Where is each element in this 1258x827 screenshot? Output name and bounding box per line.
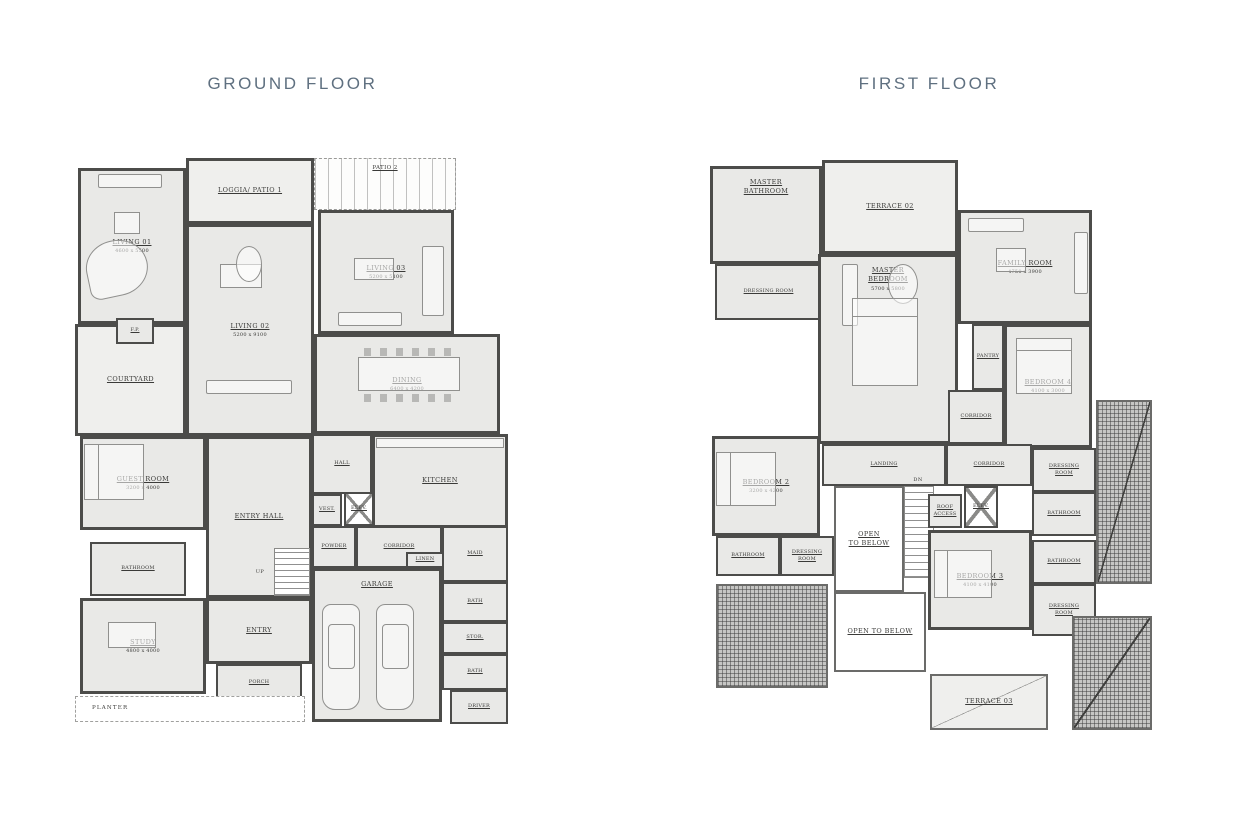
room-label: DRIVER <box>468 703 490 710</box>
room-label: OPEN TO BELOW <box>848 627 913 636</box>
room-open-to-below-2: OPEN TO BELOW <box>834 592 926 672</box>
bed-pillow-line <box>98 445 99 499</box>
room-driver: DRIVER <box>450 690 508 724</box>
room-corridor-upper: CORRIDOR <box>948 390 1004 444</box>
room-label: CORRIDOR <box>961 413 992 420</box>
furniture-rect <box>358 357 460 391</box>
room-dn-label: DN <box>906 476 930 485</box>
room-corridor-lower: CORRIDOR <box>946 444 1032 486</box>
room-label: PANTRY <box>977 353 999 360</box>
bed-pillow-line <box>947 551 948 597</box>
room-terrace-03: TERRACE 03 <box>930 674 1048 730</box>
room-label: DRESSING ROOM <box>744 288 794 295</box>
room-label: LOGGIA/ PATIO 1 <box>218 186 282 195</box>
room-open-to-below-1: OPEN TO BELOW <box>834 486 904 592</box>
room-dimensions: 4800 x 4000 <box>126 648 160 654</box>
room-label: GARAGE <box>361 580 393 589</box>
room-label: DRESSING ROOM <box>1049 463 1079 478</box>
room-patio-2: PATIO 2 <box>314 158 456 210</box>
room-vest: VEST. <box>312 494 342 526</box>
room-bath-1: BATH <box>442 582 508 622</box>
first-floor-plan: MASTER BATHROOMTERRACE 02DRESSING ROOMMA… <box>700 152 1158 732</box>
room-label: OPEN TO BELOW <box>849 530 890 549</box>
room-linen: LINEN <box>406 552 444 568</box>
room-powder: POWDER <box>312 526 356 568</box>
furniture-sofa <box>98 174 162 188</box>
bed-pillow-line <box>1017 350 1071 351</box>
room-label: ELEV. <box>351 505 367 512</box>
furniture-chairs <box>364 394 454 402</box>
room-label: BATHROOM <box>1047 510 1080 517</box>
furniture-rect <box>354 258 394 280</box>
room-label: POWDER <box>321 543 346 550</box>
furniture-bed <box>852 298 918 386</box>
room-up-label: UP <box>250 568 270 578</box>
room-label: PORCH <box>249 679 269 686</box>
room-label: DN <box>913 477 922 484</box>
room-roof-bottom-right <box>1072 616 1152 730</box>
room-label: UP <box>256 569 264 576</box>
room-label: HALL <box>334 460 349 467</box>
furniture-bed <box>934 550 992 598</box>
car-cabin <box>328 624 354 670</box>
room-label: ENTRY <box>246 626 272 635</box>
room-label: COURTYARD <box>107 375 154 384</box>
room-label: TERRACE 03 <box>965 697 1013 706</box>
room-label: LINEN <box>416 556 435 563</box>
room-label: ROOF ACCESS <box>934 504 957 519</box>
room-label: BATHROOM <box>121 565 154 572</box>
room-fireplace: F.P. <box>116 318 154 344</box>
room-loggia-patio-1: LOGGIA/ PATIO 1 <box>186 158 314 224</box>
furniture-rect <box>376 438 504 448</box>
room-label: ELEV. <box>973 503 989 510</box>
room-label: BATHROOM <box>731 552 764 559</box>
room-label: KITCHEN <box>422 476 458 485</box>
room-label: MAID <box>467 550 483 557</box>
room-stor: STOR. <box>442 622 508 654</box>
room-master-bathroom: MASTER BATHROOM <box>710 166 822 264</box>
room-roof-left <box>716 584 828 688</box>
furniture-sofa <box>1074 232 1088 294</box>
furniture-car <box>376 604 414 710</box>
room-bathroom-ground: BATHROOM <box>90 542 186 596</box>
room-label: LANDING <box>870 461 897 468</box>
furniture-bed <box>716 452 776 506</box>
furniture-sofa <box>206 380 292 394</box>
room-bathroom-bed2: BATHROOM <box>716 536 780 576</box>
furniture-rect <box>108 622 156 648</box>
room-bathroom-right-1: BATHROOM <box>1032 492 1096 536</box>
furniture-sofa <box>968 218 1024 232</box>
room-dressing-room-bed4: DRESSING ROOM <box>1032 448 1096 492</box>
furniture-rect <box>996 248 1026 272</box>
room-label: CORRIDOR <box>384 543 415 550</box>
room-label: BATH <box>467 598 483 605</box>
room-dressing-room-bed2: DRESSING ROOM <box>780 536 834 576</box>
furniture-bed <box>1016 338 1072 394</box>
room-hall: HALL <box>312 434 372 494</box>
room-elev-first: ELEV. <box>964 486 998 528</box>
ground-floor-title: GROUND FLOOR <box>70 74 515 94</box>
room-entry: ENTRY <box>206 598 312 664</box>
room-label: BATH <box>467 668 483 675</box>
car-cabin <box>382 624 408 670</box>
room-roof-access: ROOF ACCESS <box>928 494 962 528</box>
room-label: LIVING 02 <box>231 322 270 331</box>
room-label: F.P. <box>130 327 139 334</box>
furniture-sofa <box>338 312 402 326</box>
room-planter: PLANTER <box>75 696 305 722</box>
room-label: DRESSING ROOM <box>792 549 822 564</box>
room-label: VEST. <box>319 506 335 513</box>
room-roof-right <box>1096 400 1152 584</box>
first-floor-title: FIRST FLOOR <box>700 74 1158 94</box>
bed-pillow-line <box>853 316 917 317</box>
furniture-car <box>322 604 360 710</box>
room-label: CORRIDOR <box>974 461 1005 468</box>
floor-plans-page: GROUND FLOOR FIRST FLOOR LIVING 014600 x… <box>0 0 1258 827</box>
room-label: ENTRY HALL <box>235 512 284 521</box>
furniture-oval <box>236 246 262 282</box>
furniture-stairs <box>274 548 310 596</box>
room-label: MASTER BATHROOM <box>744 178 789 197</box>
room-elev-ground: ELEV. <box>344 492 374 526</box>
room-label: STOR. <box>466 634 483 641</box>
room-bathroom-right-2: BATHROOM <box>1032 540 1096 584</box>
room-kitchen: KITCHEN <box>372 434 508 528</box>
furniture-chairs <box>364 348 454 356</box>
room-label: PATIO 2 <box>372 165 397 173</box>
furniture-sofa <box>422 246 444 316</box>
room-label: BATHROOM <box>1047 558 1080 565</box>
room-dressing-room-master: DRESSING ROOM <box>715 264 822 320</box>
room-pantry: PANTRY <box>972 324 1004 390</box>
ground-floor-plan: LIVING 014600 x 5500LOGGIA/ PATIO 1PATIO… <box>70 152 515 724</box>
bed-pillow-line <box>730 453 731 505</box>
furniture-rect <box>114 212 140 234</box>
room-label: PLANTER <box>92 705 128 713</box>
room-dimensions: 5200 x 9100 <box>233 332 267 338</box>
room-bath-2: BATH <box>442 654 508 690</box>
room-terrace-02: TERRACE 02 <box>822 160 958 254</box>
furniture-bed <box>84 444 144 500</box>
room-maid: MAID <box>442 526 508 582</box>
room-label: TERRACE 02 <box>866 202 914 211</box>
